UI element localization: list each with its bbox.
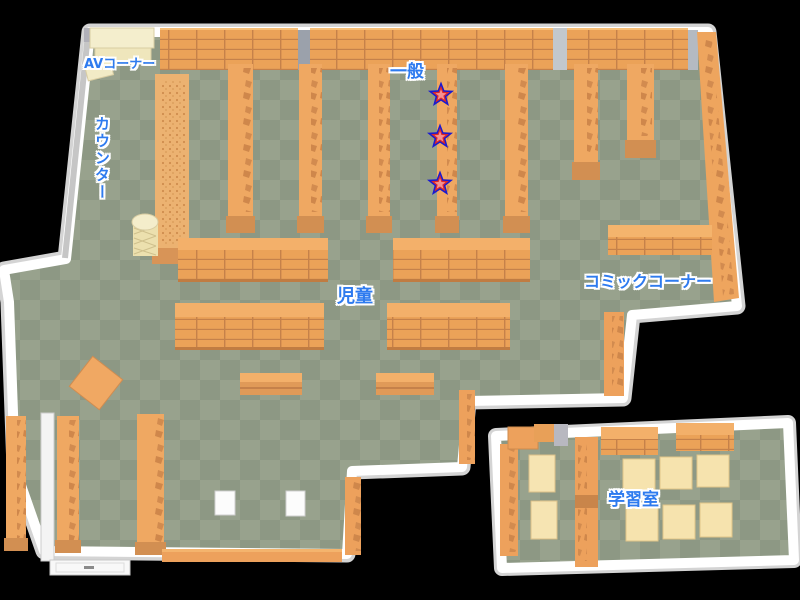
area-label-av-corner: AVコーナー [84,53,155,72]
wall-shelf-row [160,28,698,70]
area-label-comic-corner: コミックコーナー [584,268,712,292]
area-label-general: 一般 [390,57,424,82]
study-desk [529,455,555,492]
pillar [554,424,568,446]
area-label-children: 児童 [337,282,373,308]
pillar [688,30,698,70]
area-label-study-room: 学習室 [608,485,659,510]
area-label-counter: カウンター [92,116,113,201]
entrance-door [50,560,130,575]
study-desk [531,501,557,539]
spiral-rack [132,214,158,256]
floor-map: AVコーナー カウンター 一般 児童 コミックコーナー 学習室 [0,0,800,600]
floor-map-canvas [0,0,800,600]
pillar [553,28,567,70]
divider-wall [41,413,54,561]
